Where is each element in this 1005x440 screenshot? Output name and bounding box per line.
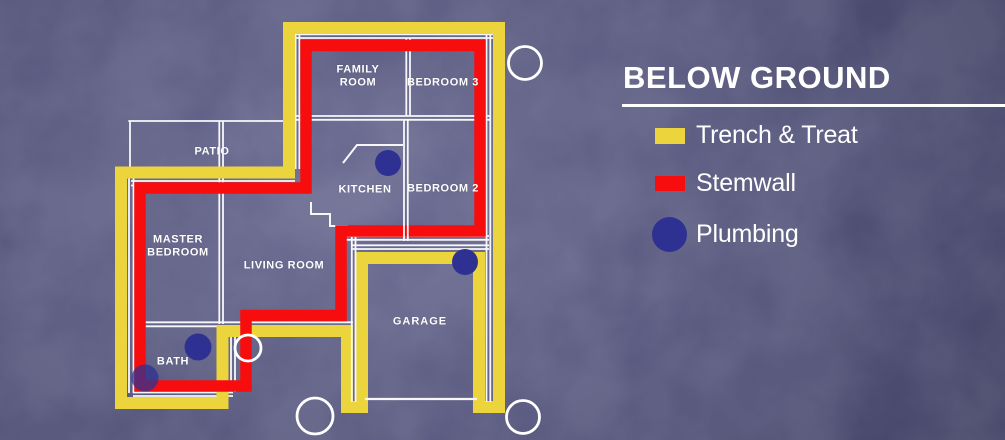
legend: BELOW GROUND Trench & Treat Stemwall Plu… xyxy=(0,0,1005,440)
trench-swatch-box xyxy=(651,128,688,144)
legend-item-trench: Trench & Treat xyxy=(651,127,858,144)
stemwall-swatch-icon xyxy=(655,176,685,191)
plumbing-swatch-box xyxy=(651,217,688,252)
legend-underline xyxy=(622,104,1005,107)
legend-item-label: Trench & Treat xyxy=(696,123,858,148)
legend-item-plumbing: Plumbing xyxy=(651,216,799,252)
legend-item-stemwall: Stemwall xyxy=(651,175,796,191)
legend-item-label: Stemwall xyxy=(696,171,796,196)
plumbing-swatch-icon xyxy=(652,217,687,252)
legend-title: BELOW GROUND xyxy=(623,62,891,93)
floor-plan-diagram: FAMILY ROOM BEDROOM 3 PATIO KITCHEN BEDR… xyxy=(0,0,1005,440)
legend-item-label: Plumbing xyxy=(696,222,799,247)
trench-swatch-icon xyxy=(655,128,685,144)
stemwall-swatch-box xyxy=(651,176,688,191)
